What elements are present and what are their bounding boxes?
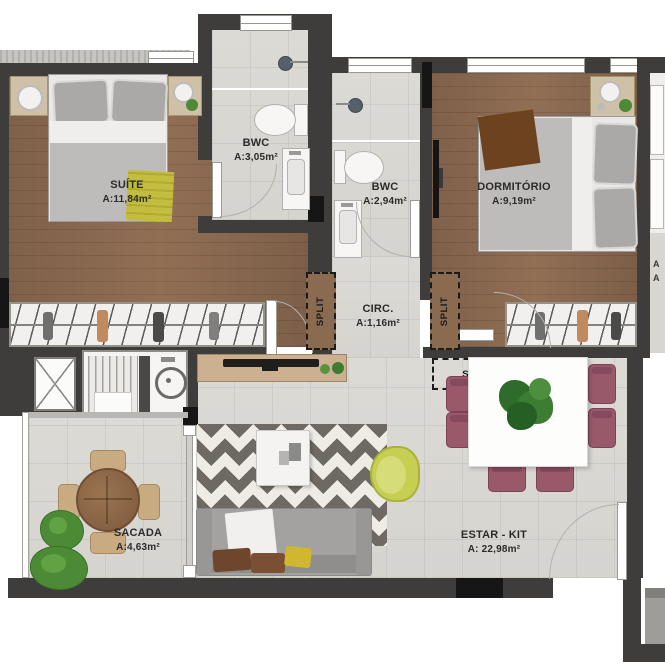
bottom-wall-corner bbox=[623, 578, 641, 598]
split-unit-dormitorio: SPLIT bbox=[430, 272, 460, 350]
circulacao-label: CIRC. A:1,16m² bbox=[334, 302, 422, 330]
bwc-social-window bbox=[348, 58, 412, 73]
monstera-plant-icon bbox=[529, 378, 551, 400]
shower-divider bbox=[212, 88, 308, 90]
dining-table bbox=[468, 357, 588, 467]
split-unit-suite: SPLIT bbox=[306, 272, 336, 350]
room-name: BWC bbox=[243, 137, 270, 149]
tv-sideboard bbox=[197, 354, 347, 382]
balcony-chair bbox=[138, 484, 160, 520]
room-area: A:4,63m² bbox=[86, 541, 190, 555]
dining-chair bbox=[588, 364, 616, 404]
suite-label: SUÍTE A:11,84m² bbox=[52, 178, 202, 206]
glass-door-frame-top bbox=[183, 425, 196, 436]
room-name: SACADA bbox=[114, 527, 162, 539]
bed-pillow bbox=[592, 122, 638, 185]
table-lamp-icon bbox=[599, 81, 621, 103]
apartment-floor-plan: SUÍTE A:11,84m² SPLIT BWC A:3,05m² BWC bbox=[0, 0, 665, 665]
estar-kit-label: ESTAR - KIT A: 22,98m² bbox=[426, 528, 562, 556]
shower-arm bbox=[290, 61, 308, 63]
balcony-plant bbox=[40, 510, 84, 550]
bed-pillow bbox=[52, 79, 110, 126]
shower-arm bbox=[336, 103, 350, 105]
sink-basin bbox=[287, 159, 305, 195]
dorm-nightstand bbox=[590, 76, 635, 118]
bed-pillow bbox=[592, 186, 638, 249]
room-area: A:9,19m² bbox=[448, 195, 580, 209]
bottom-right-wall bbox=[623, 644, 665, 662]
neighbor-counter bbox=[645, 588, 665, 644]
room-area: A: 22,98m² bbox=[426, 543, 562, 557]
bwc-suite-label: BWC A:3,05m² bbox=[200, 136, 312, 164]
laundry-divider bbox=[139, 356, 150, 412]
bed-fold bbox=[50, 121, 166, 143]
neighbor-floor bbox=[650, 233, 665, 353]
round-table bbox=[76, 468, 140, 532]
center-wall-pillar bbox=[308, 196, 324, 222]
suite-left-wall-pillar bbox=[0, 278, 9, 328]
room-name: SUÍTE bbox=[110, 179, 143, 191]
suite-nightstand-left bbox=[10, 76, 48, 116]
dormitorio-label: DORMITÓRIO A:9,19m² bbox=[448, 180, 580, 208]
suite-nightstand-right bbox=[168, 76, 202, 116]
tv-icon bbox=[223, 359, 319, 367]
neighbor-partial-label: A A bbox=[653, 258, 660, 285]
sofa-pillow-brown bbox=[251, 553, 285, 573]
room-name: CIRC. bbox=[363, 303, 394, 315]
shower-head-icon bbox=[278, 56, 293, 71]
bwc-suite-window bbox=[240, 15, 292, 31]
estar-right-wall bbox=[627, 358, 643, 578]
small-plant-icon bbox=[186, 99, 198, 111]
toilet-icon bbox=[254, 104, 296, 136]
room-name: DORMITÓRIO bbox=[477, 181, 551, 193]
dormitorio-right-wall bbox=[637, 57, 650, 358]
room-name: BWC bbox=[372, 181, 399, 193]
neighbor-furniture bbox=[650, 85, 664, 155]
toilet-tank bbox=[294, 104, 308, 136]
neighbor-furniture bbox=[650, 159, 664, 229]
glass-door-frame-bottom bbox=[183, 565, 196, 578]
small-plant-icon bbox=[332, 362, 344, 374]
lime-armchair bbox=[370, 446, 420, 502]
sacada-top-rail bbox=[29, 412, 188, 418]
bottom-wall-black-segment bbox=[456, 578, 503, 598]
suite-wardrobe bbox=[9, 302, 265, 347]
sink-basin bbox=[339, 210, 357, 244]
balcony-plant bbox=[30, 546, 88, 590]
bottom-wall-mid bbox=[503, 578, 553, 598]
bwc-social-door bbox=[410, 200, 420, 258]
bwc-social-dorm-pillar bbox=[422, 62, 432, 108]
dining-chair bbox=[588, 408, 616, 448]
duct-shaft bbox=[34, 357, 76, 411]
bed-pillow bbox=[110, 79, 168, 126]
monstera-plant-icon bbox=[507, 402, 537, 430]
small-plant-icon bbox=[619, 99, 632, 112]
room-name: ESTAR - KIT bbox=[461, 529, 527, 541]
laundry-area bbox=[82, 350, 188, 418]
split-label: SPLIT bbox=[440, 296, 451, 325]
sacada-left-rail bbox=[22, 412, 29, 578]
brown-throw bbox=[478, 109, 541, 170]
sacada-estar-glass-door bbox=[186, 425, 193, 578]
sofa-pillow-brown bbox=[212, 548, 251, 573]
sofa-armrest bbox=[356, 509, 371, 575]
room-area: A:11,84m² bbox=[52, 193, 202, 207]
small-plant-icon bbox=[320, 364, 330, 374]
washing-machine-icon bbox=[152, 355, 185, 413]
split-label: SPLIT bbox=[316, 296, 327, 325]
table-lamp-icon bbox=[17, 85, 43, 111]
room-area: A:1,16m² bbox=[334, 317, 422, 331]
picture-frame bbox=[279, 451, 289, 465]
dormitorio-window bbox=[467, 58, 585, 73]
sofa-pillow-yellow bbox=[284, 546, 312, 569]
shower-head-icon bbox=[348, 98, 363, 113]
sofa-armrest bbox=[197, 509, 212, 575]
neighbor-unit-strip bbox=[650, 73, 665, 353]
entry-side-wall bbox=[623, 598, 641, 646]
tv-bracket bbox=[439, 168, 443, 188]
sofa bbox=[196, 508, 372, 576]
shower-divider bbox=[332, 140, 420, 142]
coffee-table bbox=[256, 430, 310, 486]
bwc-suite-bottom-wall bbox=[198, 220, 308, 233]
sacada-label: SACADA A:4,63m² bbox=[86, 526, 190, 554]
picture-frame bbox=[289, 443, 301, 461]
